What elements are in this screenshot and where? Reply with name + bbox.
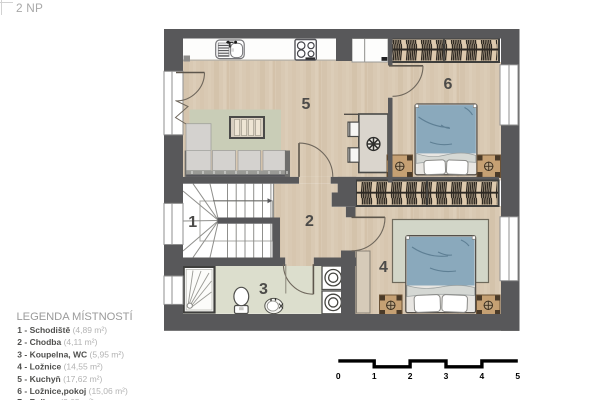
svg-text:5 - Kuchyň (17,62 m²): 5 - Kuchyň (17,62 m²) [17, 374, 102, 384]
svg-text:2: 2 [408, 371, 413, 381]
svg-text:LEGENDA MÍSTNOSTÍ: LEGENDA MÍSTNOSTÍ [17, 310, 134, 323]
svg-text:4: 4 [379, 259, 388, 276]
svg-text:6: 6 [444, 76, 453, 93]
svg-text:1: 1 [188, 214, 197, 231]
svg-text:1 - Schodiště (4,89 m²): 1 - Schodiště (4,89 m²) [17, 325, 107, 335]
svg-text:4 - Ložnice (14,55 m²): 4 - Ložnice (14,55 m²) [17, 362, 103, 372]
svg-text:6 - Ložnice,pokoj (15,06 m²): 6 - Ložnice,pokoj (15,06 m²) [17, 386, 128, 396]
svg-text:4: 4 [480, 371, 485, 381]
svg-text:5: 5 [302, 96, 311, 113]
svg-text:2 NP: 2 NP [16, 1, 43, 15]
svg-text:2 - Chodba (4,11 m²): 2 - Chodba (4,11 m²) [17, 337, 97, 347]
svg-text:1: 1 [372, 371, 377, 381]
svg-text:5: 5 [515, 371, 520, 381]
svg-text:3: 3 [259, 281, 268, 298]
svg-text:0: 0 [336, 371, 341, 381]
svg-text:3: 3 [444, 371, 449, 381]
svg-text:2: 2 [305, 213, 314, 230]
svg-text:3 - Koupelna, WC (5,95 m²): 3 - Koupelna, WC (5,95 m²) [17, 349, 124, 359]
